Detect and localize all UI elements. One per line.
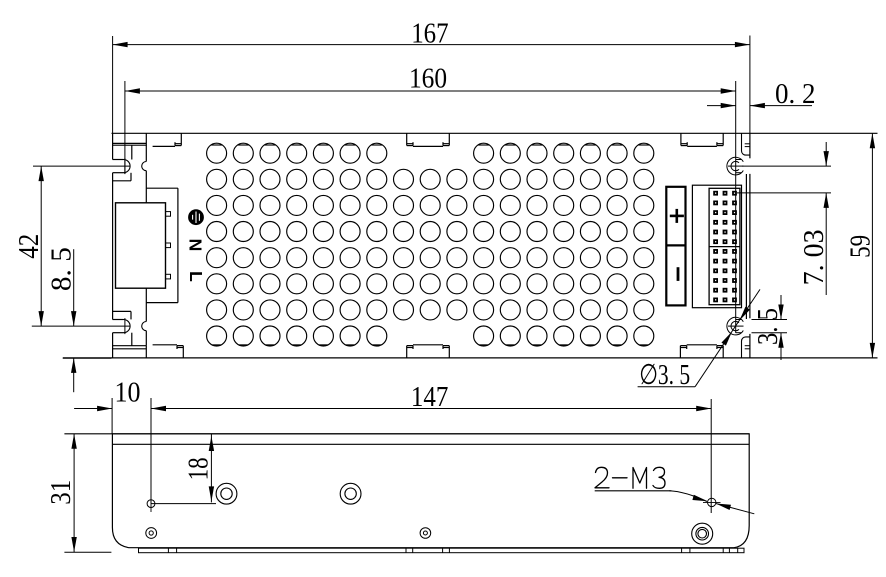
svg-text:7. 03: 7. 03 [799,229,830,285]
svg-text:59: 59 [845,235,876,258]
svg-text:0. 2: 0. 2 [775,79,816,110]
svg-text:147: 147 [411,382,449,413]
svg-text:31: 31 [46,480,77,505]
svg-text:167: 167 [411,18,448,49]
svg-text:N: N [186,239,206,252]
svg-text:3. 5: 3. 5 [753,308,784,345]
svg-text:10: 10 [115,377,141,408]
svg-text:8. 5: 8. 5 [46,247,77,291]
svg-text:42: 42 [14,234,45,259]
svg-text:L: L [186,271,206,282]
svg-text:160: 160 [409,64,447,95]
svg-text:18: 18 [183,457,214,480]
